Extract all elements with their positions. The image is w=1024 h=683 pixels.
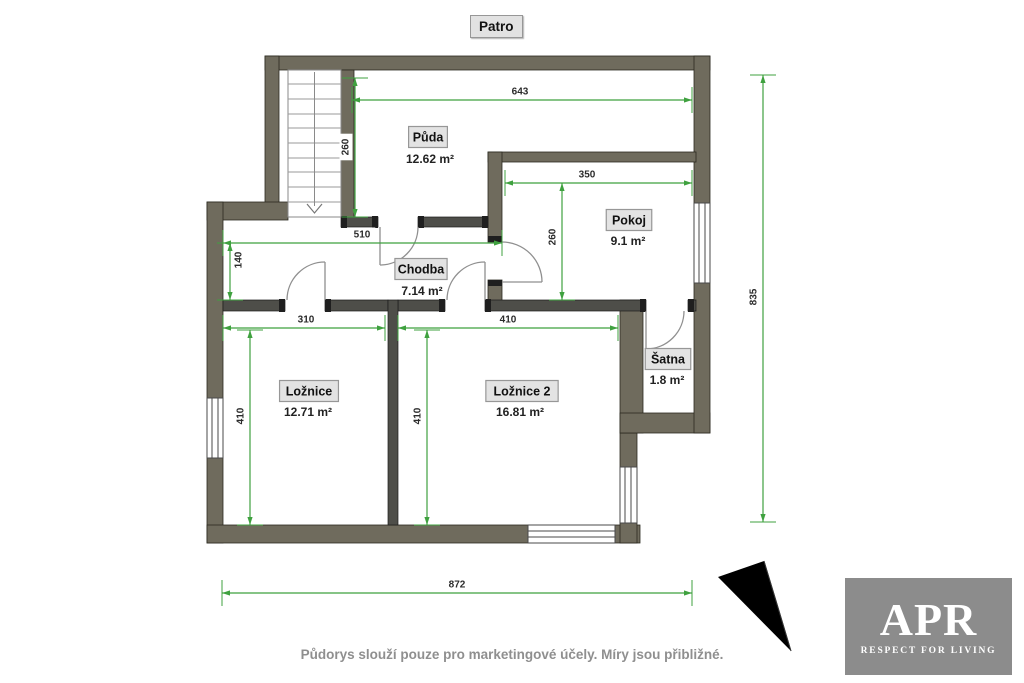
room-label-5: Ložnice 216.81 m² [486, 381, 558, 420]
window-loznice-left [207, 398, 223, 458]
dimension-510: 510 [223, 228, 502, 257]
room-name: Ložnice 2 [494, 385, 551, 399]
door-loznice2 [447, 262, 485, 300]
wall-left-upper [265, 56, 279, 206]
dimension-value: 140 [234, 251, 245, 268]
window-loznice2-right [620, 467, 637, 523]
dimension-835: 835 [748, 75, 777, 522]
dimension-643: 643 [352, 85, 692, 114]
partition-main-a [223, 300, 285, 311]
room-name: Chodba [398, 263, 446, 277]
dimension-value: 350 [579, 170, 596, 181]
door-pokoj [502, 242, 542, 282]
partition-bedrooms [388, 300, 398, 525]
room-name: Ložnice [286, 385, 333, 399]
dimension-value: 410 [500, 315, 517, 326]
partition-main-b [325, 300, 388, 311]
room-label-3: Chodba7.14 m² [395, 259, 447, 299]
room-label-6: Šatna1.8 m² [645, 349, 691, 388]
room-label-2: Pokoj9.1 m² [606, 210, 652, 249]
room-area: 12.71 m² [284, 405, 332, 419]
room-label-1: Půda12.62 m² [406, 127, 454, 167]
room-label-4: Ložnice12.71 m² [280, 381, 339, 420]
dimension-350: 350 [505, 168, 692, 197]
floor-title: Patro [470, 15, 523, 38]
dimension-410: 410 [412, 330, 441, 525]
dimension-value: 310 [298, 315, 315, 326]
room-area: 9.1 m² [611, 234, 646, 248]
dimension-value: 410 [413, 407, 424, 424]
wall-left-lower [207, 202, 223, 543]
door-satna [646, 311, 684, 349]
wall-puda-pokoj [488, 152, 696, 162]
room-name: Šatna [651, 352, 686, 367]
room-area: 7.14 m² [401, 284, 442, 298]
dimension-value: 260 [341, 138, 352, 155]
dimension-value: 643 [512, 87, 529, 98]
room-area: 16.81 m² [496, 405, 544, 419]
partition-chodba-top-b [418, 217, 488, 227]
dimension-value: 872 [449, 580, 466, 591]
north-arrow [718, 561, 791, 651]
dimension-value: 410 [236, 407, 247, 424]
partition-main-d [485, 300, 646, 311]
logo-tagline: RESPECT FOR LIVING [861, 646, 997, 656]
apr-logo: APR RESPECT FOR LIVING [845, 578, 1012, 675]
wall-pokoj-left [488, 152, 502, 242]
window-pokoj-right [694, 203, 710, 283]
room-area: 1.8 m² [650, 373, 685, 387]
wall-top [265, 56, 710, 70]
room-name: Pokoj [612, 214, 646, 228]
room-name: Půda [413, 131, 445, 145]
dimension-value: 835 [749, 288, 760, 305]
door-loznice [287, 262, 325, 300]
dimension-value: 510 [354, 230, 371, 241]
staircase [288, 70, 341, 217]
dimension-260: 260 [547, 183, 576, 300]
dimension-410: 410 [235, 330, 264, 525]
dimension-410: 410 [398, 313, 618, 342]
partition-main-c [398, 300, 445, 311]
window-loznice2-bottom [528, 525, 615, 543]
dimension-872: 872 [222, 578, 692, 607]
floorplan-canvas: 643260350260510140310410410410872835 Půd… [0, 0, 1024, 683]
dimension-310: 310 [223, 313, 385, 342]
dimension-value: 260 [548, 228, 559, 245]
logo-text: APR [880, 597, 978, 643]
room-area: 12.62 m² [406, 152, 454, 166]
